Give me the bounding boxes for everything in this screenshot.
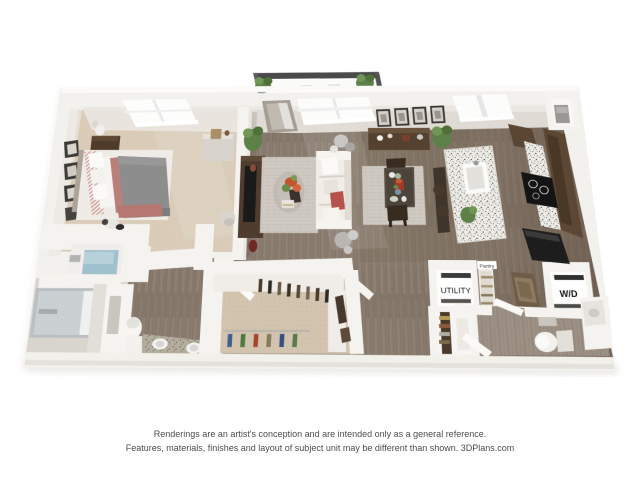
svg-text:W/D: W/D: [559, 289, 579, 300]
svg-text:UTILITY: UTILITY: [441, 287, 472, 295]
svg-text:Pantry: Pantry: [479, 263, 495, 269]
